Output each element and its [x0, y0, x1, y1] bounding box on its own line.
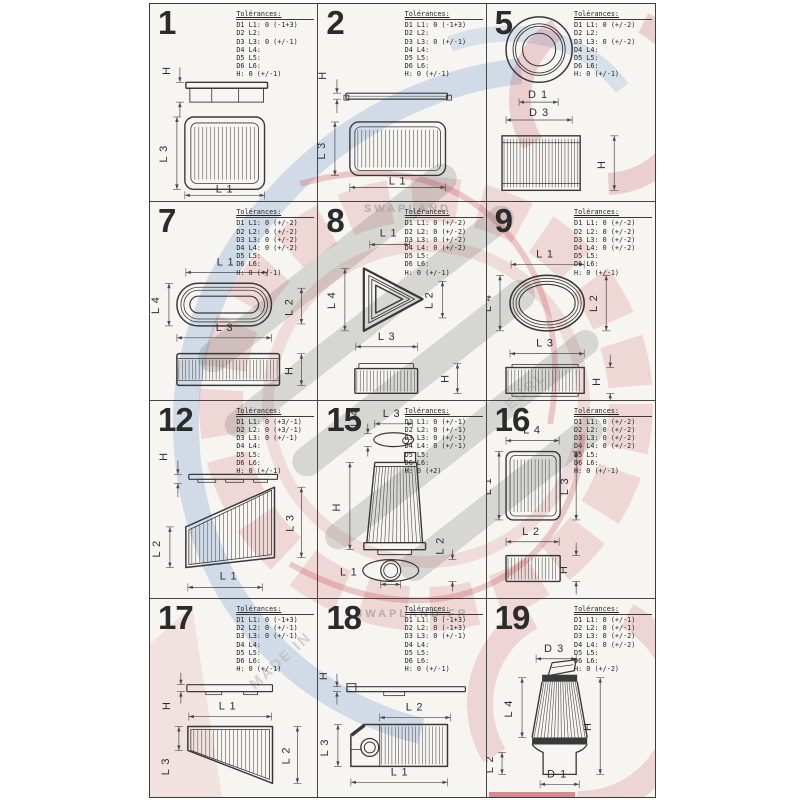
tolerance-row: D3 L3: 0 (+/-1)	[405, 38, 483, 46]
dim-label: D 3	[529, 107, 549, 119]
tolerance-table: Tolérances: D1 L1: 0 (+3/-1)D2 L2: 0 (+3…	[236, 407, 314, 476]
dim-label: H	[596, 160, 608, 169]
tolerance-header: Tolérances:	[574, 10, 652, 20]
tolerance-table: Tolérances: D1 L1: 0 (+/-2)D2 L2: 0 (+/-…	[574, 208, 652, 277]
tolerance-row: D1 L1: 0 (+/-2)	[236, 219, 314, 227]
tolerance-row: D1 L1: 0 (+/-2)	[574, 21, 652, 29]
tolerance-row: D5 L5:	[405, 451, 483, 459]
tolerance-row: D4 L4: 0 (+/-1)	[405, 442, 483, 450]
tolerance-row: H: 0 (+/-1)	[574, 467, 652, 475]
tolerance-table: Tolérances: D1 L1: 0 (+/-1)D2 L2: 0 (+/-…	[405, 407, 483, 476]
dim-label: L 3	[383, 407, 401, 419]
filter-type-number: 8	[326, 204, 343, 237]
dim-label: L 4	[503, 699, 515, 717]
dim-label: L 1	[217, 257, 235, 269]
dim-label: L 1	[380, 228, 398, 240]
dim-label: L 3	[160, 757, 172, 775]
dim-label: L 3	[378, 331, 396, 343]
tolerance-row: D3 L3: 0 (+/-1)	[405, 434, 483, 442]
dim-label: L 2	[522, 525, 540, 537]
tolerance-row: D6 L6:	[405, 62, 483, 70]
tolerance-row: D6 L6:	[574, 62, 652, 70]
dim-label: L 4	[150, 296, 162, 314]
dim-label: L 3	[284, 514, 296, 532]
tolerance-row: D3 L3: 0 (+/-2)	[405, 236, 483, 244]
tolerance-row: D1 L1: 0 (-1+3)	[236, 21, 314, 29]
tolerance-row: D5 L5:	[574, 649, 652, 657]
tolerance-rows: D1 L1: 0 (-1+3)D2 L2:D3 L3: 0 (+/-1)D4 L…	[405, 21, 483, 78]
tolerance-table: Tolérances: D1 L1: 0 (+/-2)D2 L2: 0 (+/-…	[236, 208, 314, 277]
tolerance-row: H: 0 (+/-2)	[574, 665, 652, 673]
tolerance-row: D4 L4:	[405, 46, 483, 54]
dim-label: L 3	[318, 142, 328, 160]
dim-label: L 1	[340, 566, 358, 578]
filter-catalog-sheet: SWAPLAND SWAPLAND.FR MADE IN EURL 1 Tolé…	[0, 0, 800, 800]
tolerance-row: D4 L4: 0 (+/-2)	[574, 442, 652, 450]
tolerance-row: D2 L2: 0 (+/-2)	[574, 426, 652, 434]
cell-filter-type-8: 8 Tolérances: D1 L1: 0 (+/-2)D2 L2: 0 (+…	[318, 202, 486, 400]
tolerance-rows: D1 L1: 0 (+/-2)D2 L2: 0 (+/-2)D3 L3: 0 (…	[405, 219, 483, 276]
tolerance-row: D3 L3: 0 (+/-1)	[236, 434, 314, 442]
dim-label: L 2	[406, 701, 424, 713]
tolerance-rows: D1 L1: 0 (+3/-1)D2 L2: 0 (+3/-1)D3 L3: 0…	[236, 418, 314, 475]
dim-label: H	[158, 452, 170, 461]
tolerance-table: Tolérances: D1 L1: 0 (-1+3)D2 L2: 0 (+/-…	[236, 605, 314, 674]
dim-label: H	[161, 701, 173, 710]
tolerance-row: D2 L2: 0 (+3/-1)	[236, 426, 314, 434]
tolerance-row: D1 L1: 0 (+/-2)	[405, 219, 483, 227]
tolerance-row: D2 L2: 0 (+/-2)	[236, 228, 314, 236]
tolerance-row: D4 L4:	[236, 442, 314, 450]
tolerance-row: D4 L4: 0 (+/-2)	[236, 244, 314, 252]
filter-type-number: 1	[158, 6, 175, 39]
tolerance-row: D3 L3: 0 (+/-1)	[236, 38, 314, 46]
tolerance-row: D5 L5:	[236, 649, 314, 657]
cell-filter-type-16: 16 Tolérances: D1 L1: 0 (+/-2)D2 L2: 0 (…	[487, 401, 655, 599]
tolerance-row: D4 L4: 0 (+/-2)	[574, 244, 652, 252]
filter-type-number: 12	[158, 403, 193, 436]
cell-filter-type-18: 18 Tolérances: D1 L1: 0 (-1+3)D2 L2: 0 (…	[318, 599, 486, 797]
tolerance-rows: D1 L1: 0 (+/-1)D2 L2: 0 (+/-1)D3 L3: 0 (…	[405, 418, 483, 475]
dim-label: L 4	[326, 292, 338, 310]
tolerance-row: D6 L6:	[405, 459, 483, 467]
tolerance-header: Tolérances:	[405, 208, 483, 218]
tolerance-row: D2 L2: 0 (+/-1)	[236, 624, 314, 632]
dim-label: L 1	[219, 700, 237, 712]
dim-label: L 1	[391, 766, 409, 778]
cell-filter-type-15: 15 Tolérances: D1 L1: 0 (+/-1)D2 L2: 0 (…	[318, 401, 486, 599]
tolerance-rows: D1 L1: 0 (+/-2)D2 L2:D3 L3: 0 (+/-2)D4 L…	[574, 21, 652, 78]
dim-label: L 1	[389, 175, 407, 187]
tolerance-rows: D1 L1: 0 (+/-2)D2 L2: 0 (+/-2)D3 L3: 0 (…	[574, 418, 652, 475]
tolerance-row: D5 L5:	[236, 54, 314, 62]
tolerance-row: D6 L6:	[236, 459, 314, 467]
tolerance-rows: D1 L1: 0 (+/-1)D2 L2: 0 (+/-1)D3 L3: 0 (…	[574, 616, 652, 673]
dim-label: D 1	[528, 89, 548, 101]
tolerance-table: Tolérances: D1 L1: 0 (+/-2)D2 L2: 0 (+/-…	[405, 208, 483, 277]
filter-type-number: 16	[495, 403, 530, 436]
dim-label: H	[558, 565, 570, 574]
tolerance-row: D2 L2:	[405, 29, 483, 37]
tolerance-row: D1 L1: 0 (+/-2)	[574, 418, 652, 426]
tolerance-row: D5 L5:	[405, 252, 483, 260]
tolerance-row: D2 L2: 0 (+/-1)	[574, 624, 652, 632]
tolerance-row: D3 L3: 0 (+/-2)	[574, 434, 652, 442]
dim-label: H	[283, 366, 295, 375]
filter-type-number: 15	[326, 403, 361, 436]
filter-type-number: 18	[326, 601, 361, 634]
tolerance-row: D2 L2: 0 (+/-2)	[405, 228, 483, 236]
tolerance-row: D4 L4:	[574, 46, 652, 54]
dim-label: D 3	[544, 643, 564, 655]
tolerance-header: Tolérances:	[236, 605, 314, 615]
tolerance-row: D2 L2:	[236, 29, 314, 37]
filter-type-number: 19	[495, 601, 530, 634]
tolerance-row: D3 L3: 0 (+/-2)	[574, 38, 652, 46]
tolerance-row: D1 L1: 0 (+3/-1)	[236, 418, 314, 426]
tolerance-table: Tolérances: D1 L1: 0 (+/-2)D2 L2:D3 L3: …	[574, 10, 652, 79]
tolerance-row: D1 L1: 0 (+/-1)	[574, 616, 652, 624]
tolerance-row: D3 L3: 0 (+/-1)	[236, 632, 314, 640]
dim-label: H	[331, 502, 343, 511]
tolerance-row: D4 L4:	[236, 641, 314, 649]
tolerance-row: D2 L2: 0 (+/-1)	[405, 426, 483, 434]
tolerance-row: D1 L1: 0 (-1+3)	[236, 616, 314, 624]
cell-filter-type-7: 7 Tolérances: D1 L1: 0 (+/-2)D2 L2: 0 (+…	[150, 202, 318, 400]
tolerance-rows: D1 L1: 0 (+/-2)D2 L2: 0 (+/-2)D3 L3: 0 (…	[574, 219, 652, 276]
tolerance-row: H: 0 (+/-1)	[236, 70, 314, 78]
tolerance-row: D2 L2: 0 (+/-2)	[574, 228, 652, 236]
tolerance-row: D6 L6:	[574, 657, 652, 665]
tolerance-row: D6 L6:	[236, 657, 314, 665]
dim-label: L 4	[487, 294, 494, 312]
dim-label: L 1	[536, 249, 554, 261]
tolerance-row: D3 L3: 0 (+/-2)	[574, 236, 652, 244]
tolerance-row: D6 L6:	[574, 260, 652, 268]
dim-label: L 3	[319, 738, 331, 756]
tolerance-row: D1 L1: 0 (-1+3)	[405, 616, 483, 624]
tolerance-row: D6 L6:	[236, 62, 314, 70]
tolerance-row: D1 L1: 0 (+/-1)	[405, 418, 483, 426]
tolerance-row: D6 L6:	[574, 459, 652, 467]
tolerance-row: D2 L2: 0 (-1+3)	[405, 624, 483, 632]
cell-filter-type-12: 12 Tolérances: D1 L1: 0 (+3/-1)D2 L2: 0 …	[150, 401, 318, 599]
dim-label: L 2	[487, 755, 496, 773]
filter-type-number: 2	[326, 6, 343, 39]
tolerance-row: D5 L5:	[236, 252, 314, 260]
cell-filter-type-2: 2 Tolérances: D1 L1: 0 (-1+3)D2 L2:D3 L3…	[318, 4, 486, 202]
tolerance-rows: D1 L1: 0 (-1+3)D2 L2:D3 L3: 0 (+/-1)D4 L…	[236, 21, 314, 78]
tolerance-row: D5 L5:	[405, 649, 483, 657]
tolerance-row: H: 0 (+/-1)	[236, 467, 314, 475]
tolerance-row: H: 0 (+/-1)	[405, 269, 483, 277]
tolerance-row: D4 L4: 0 (+/-2)	[405, 244, 483, 252]
tolerance-header: Tolérances:	[405, 605, 483, 615]
tolerance-row: D5 L5:	[574, 54, 652, 62]
dim-label: L 2	[435, 536, 447, 554]
tolerance-row: D5 L5:	[574, 451, 652, 459]
dim-label: H	[161, 66, 173, 75]
tolerance-header: Tolérances:	[405, 10, 483, 20]
tolerance-row: D4 L4:	[405, 641, 483, 649]
tolerance-row: D1 L1: 0 (-1+3)	[405, 21, 483, 29]
tolerance-row: D5 L5:	[236, 451, 314, 459]
tolerance-row: D3 L3: 0 (+/-2)	[236, 236, 314, 244]
tolerance-table: Tolérances: D1 L1: 0 (+/-2)D2 L2: 0 (+/-…	[574, 407, 652, 476]
dim-label: H	[318, 71, 329, 80]
cell-filter-type-9: 9 Tolérances: D1 L1: 0 (+/-2)D2 L2: 0 (+…	[487, 202, 655, 400]
tolerance-table: Tolérances: D1 L1: 0 (+/-1)D2 L2: 0 (+/-…	[574, 605, 652, 674]
dim-label: L 1	[487, 477, 494, 495]
tolerance-row: D5 L5:	[574, 252, 652, 260]
tolerance-rows: D1 L1: 0 (-1+3)D2 L2: 0 (-1+3)D3 L3: 0 (…	[405, 616, 483, 673]
dim-label: L 3	[536, 338, 554, 350]
tolerance-row: H: 0 (+/-1)	[574, 70, 652, 78]
filter-type-number: 17	[158, 601, 193, 634]
dim-label: L 3	[559, 477, 571, 495]
tolerance-row: D3 L3: 0 (+/-2)	[574, 632, 652, 640]
dim-label: D 1	[547, 768, 567, 780]
cell-filter-type-19: 19 Tolérances: D1 L1: 0 (+/-1)D2 L2: 0 (…	[487, 599, 655, 797]
tolerance-row: D5 L5:	[405, 54, 483, 62]
tolerance-header: Tolérances:	[236, 208, 314, 218]
tolerance-row: H: 0 (+/-1)	[405, 665, 483, 673]
tolerance-row: D3 L3: 0 (+/-1)	[405, 632, 483, 640]
cell-filter-type-1: 1 Tolérances: D1 L1: 0 (-1+3)D2 L2:D3 L3…	[150, 4, 318, 202]
tolerance-row: H: 0 (+/-1)	[236, 269, 314, 277]
tolerance-header: Tolérances:	[236, 10, 314, 20]
tolerance-rows: D1 L1: 0 (-1+3)D2 L2: 0 (+/-1)D3 L3: 0 (…	[236, 616, 314, 673]
tolerance-row: D6 L6:	[236, 260, 314, 268]
dim-label: L 2	[280, 746, 292, 764]
dim-label: L 2	[424, 292, 436, 310]
dim-label: L 3	[216, 322, 234, 334]
dim-label: L 1	[216, 183, 234, 195]
tolerance-row: H: 0 (+/-1)	[574, 269, 652, 277]
tolerance-row: D1 L1: 0 (+/-2)	[574, 219, 652, 227]
tolerance-header: Tolérances:	[405, 407, 483, 417]
filter-type-number: 5	[495, 6, 512, 39]
dim-label: H	[318, 671, 330, 680]
tolerance-rows: D1 L1: 0 (+/-2)D2 L2: 0 (+/-2)D3 L3: 0 (…	[236, 219, 314, 276]
dim-label: H	[440, 374, 452, 383]
dim-label: H	[591, 377, 603, 386]
tolerance-header: Tolérances:	[574, 208, 652, 218]
tolerance-row: H: 0 (+2)	[405, 467, 483, 475]
tolerance-row: H: 0 (+/-1)	[236, 665, 314, 673]
tolerance-row: D6 L6:	[405, 657, 483, 665]
filter-type-number: 7	[158, 204, 175, 237]
tolerance-table: Tolérances: D1 L1: 0 (-1+3)D2 L2: 0 (-1+…	[405, 605, 483, 674]
tolerance-row: D2 L2:	[574, 29, 652, 37]
dim-label: H	[582, 722, 594, 731]
dim-label: L 3	[158, 145, 170, 163]
tolerance-header: Tolérances:	[574, 605, 652, 615]
dim-label: L 1	[220, 570, 238, 582]
tolerance-table: Tolérances: D1 L1: 0 (-1+3)D2 L2:D3 L3: …	[236, 10, 314, 79]
filter-type-grid: SWAPLAND SWAPLAND.FR MADE IN EURL 1 Tolé…	[149, 3, 656, 798]
dim-label: L 2	[283, 298, 295, 316]
tolerance-row: H: 0 (+/-1)	[405, 70, 483, 78]
cell-filter-type-17: 17 Tolérances: D1 L1: 0 (-1+3)D2 L2: 0 (…	[150, 599, 318, 797]
dim-label: L 2	[151, 539, 163, 557]
tolerance-header: Tolérances:	[574, 407, 652, 417]
tolerance-table: Tolérances: D1 L1: 0 (-1+3)D2 L2:D3 L3: …	[405, 10, 483, 79]
filter-type-number: 9	[495, 204, 512, 237]
tolerance-row: D4 L4: 0 (+/-2)	[574, 641, 652, 649]
cell-filter-type-5: 5 Tolérances: D1 L1: 0 (+/-2)D2 L2:D3 L3…	[487, 4, 655, 202]
dim-label: L 2	[588, 294, 600, 312]
tolerance-row: D6 L6:	[405, 260, 483, 268]
tolerance-header: Tolérances:	[236, 407, 314, 417]
tolerance-row: D4 L4:	[236, 46, 314, 54]
